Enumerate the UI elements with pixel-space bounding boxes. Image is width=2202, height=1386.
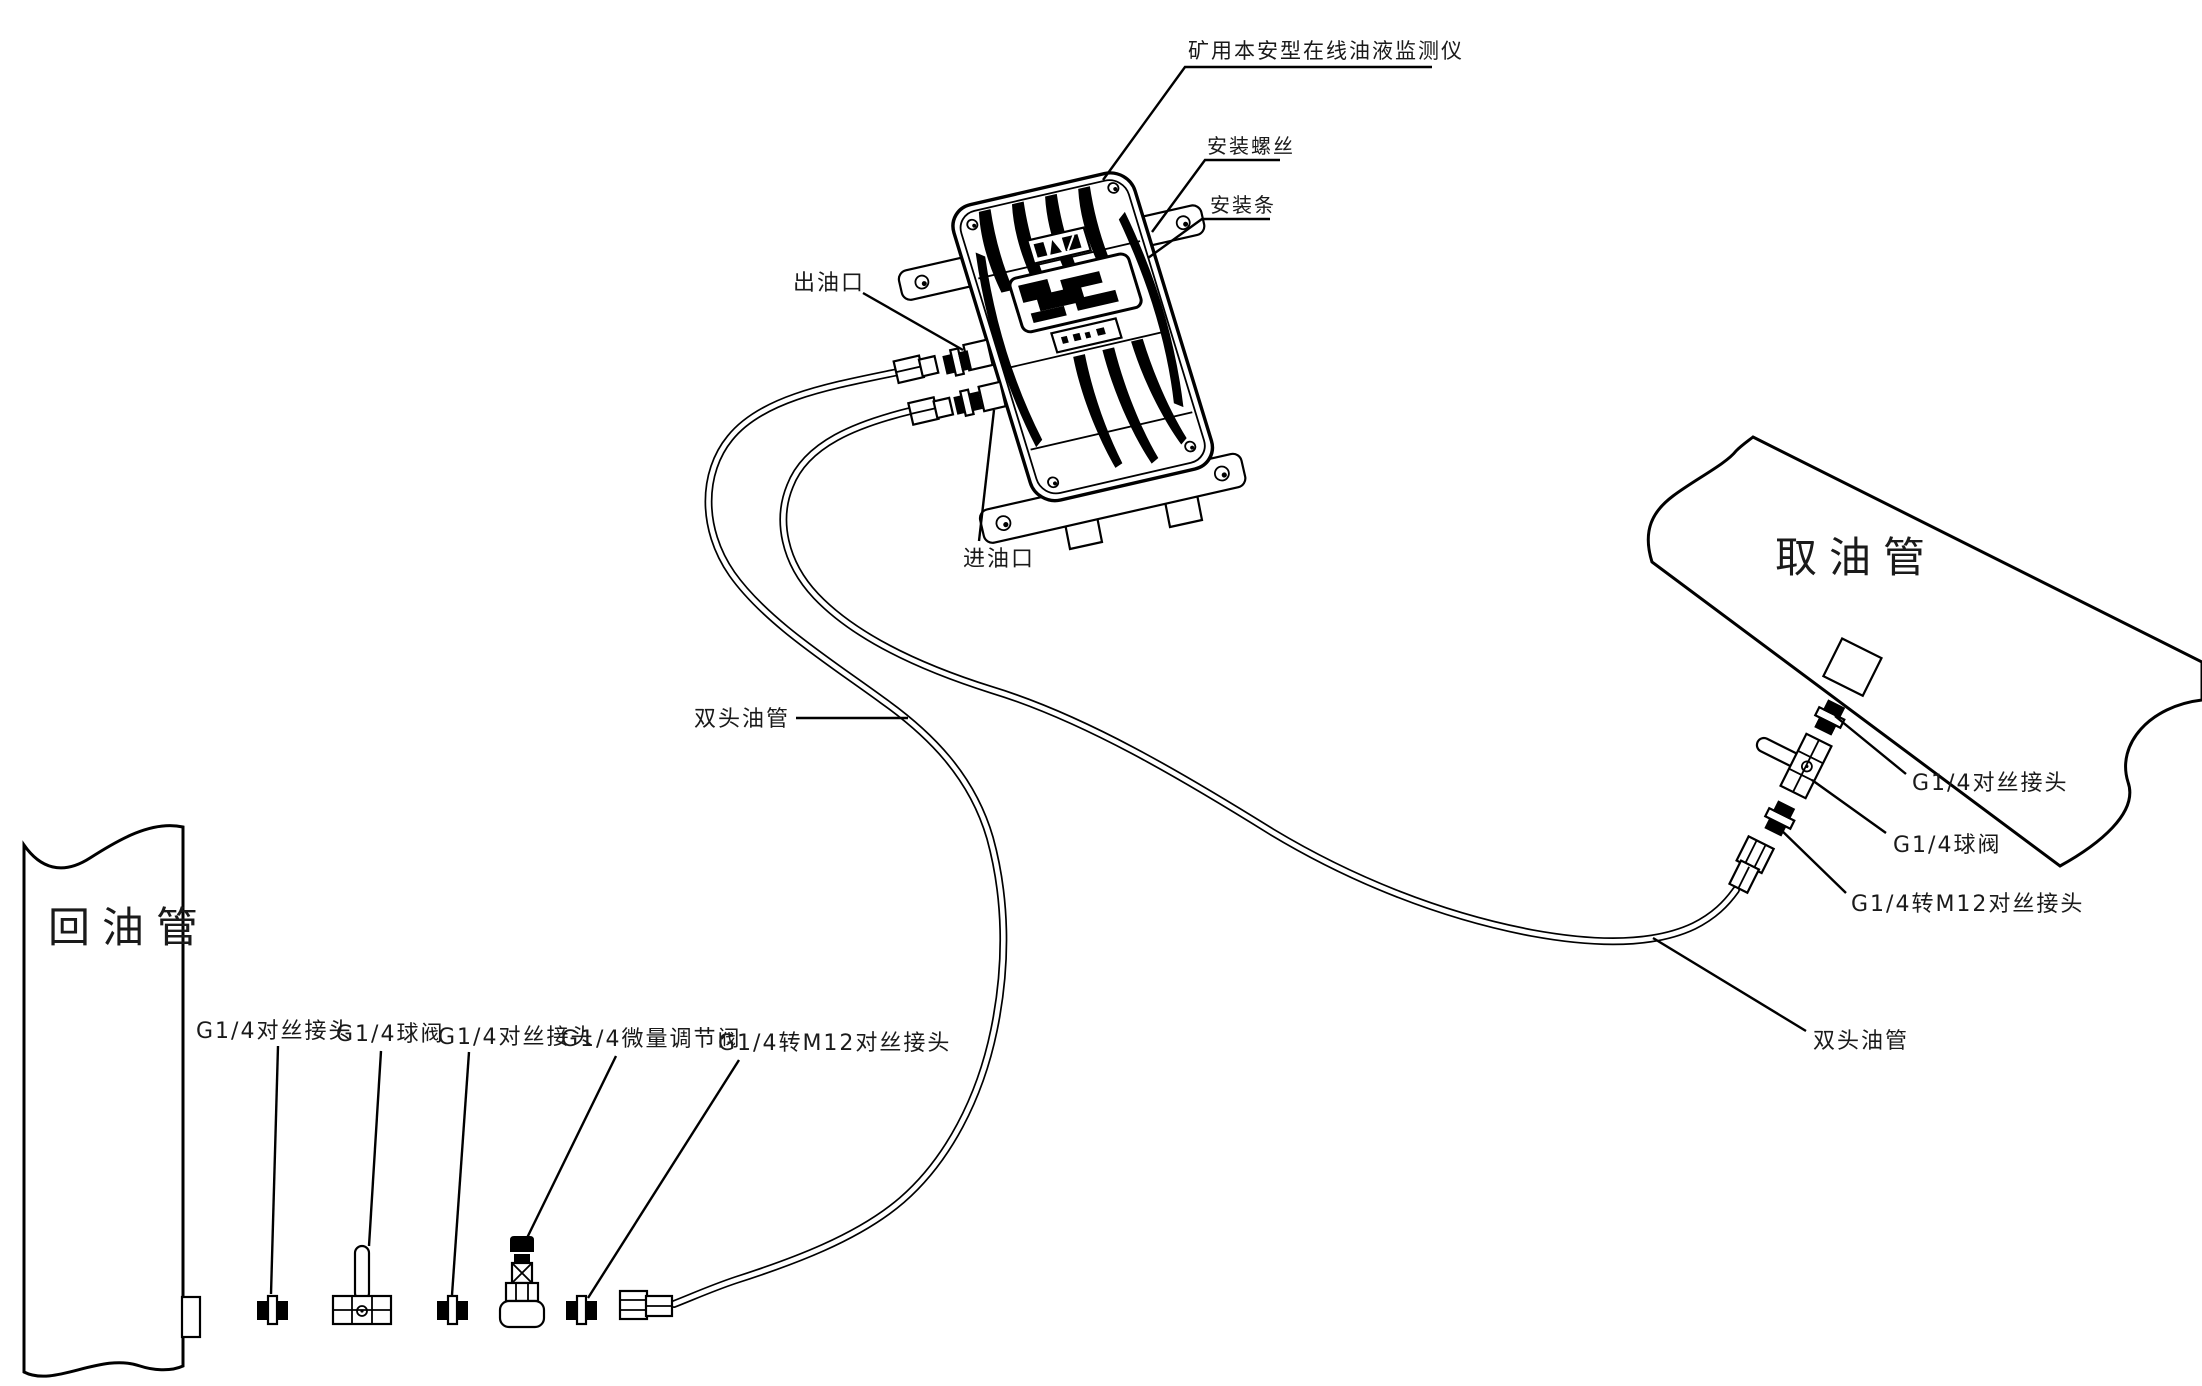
diagram-svg: 回油管 取油管	[0, 0, 2202, 1386]
hex-union-fitting-3	[566, 1296, 597, 1324]
valve-knob	[510, 1236, 534, 1252]
callout-bottom-micro-valve: G1/4微量调节阀	[526, 1027, 741, 1240]
callout-tube-left: 双头油管	[694, 707, 908, 732]
sampling-pipe-body	[1648, 437, 2202, 866]
callout-bottom-m12: G1/4转M12对丝接头	[588, 1031, 951, 1298]
outlet-tube-connector	[894, 352, 939, 383]
tube-outlet-to-return	[674, 372, 1003, 1304]
right-fittings-stack	[1726, 697, 1849, 894]
bottom-m12-label: G1/4转M12对丝接头	[718, 1031, 951, 1056]
device-title-label: 矿用本安型在线油液监测仪	[1188, 39, 1464, 63]
oil-return-pipe: 回油管	[24, 826, 210, 1377]
oil-inlet-label: 进油口	[963, 547, 1035, 572]
oil-sampling-pipe: 取油管	[1648, 437, 2202, 866]
bottom-micro-valve-label: G1/4微量调节阀	[561, 1027, 741, 1052]
oil-outlet-label: 出油口	[793, 271, 865, 296]
return-pipe-stub	[182, 1297, 200, 1337]
inlet-tube-connector	[908, 394, 953, 425]
right-ball-valve-label: G1/4球阀	[1893, 833, 2001, 858]
oil-inlet-port	[908, 382, 1005, 425]
right-union-label: G1/4对丝接头	[1912, 771, 2068, 796]
tube-inlet-to-sampling	[783, 410, 1736, 941]
mounting-screw-label: 安装螺丝	[1207, 134, 1295, 158]
tube-left-label: 双头油管	[694, 707, 790, 732]
bottom-union-1-label: G1/4对丝接头	[196, 1019, 352, 1044]
return-pipe-label: 回油管	[48, 903, 210, 952]
hex-union-fitting-1	[257, 1296, 288, 1324]
tube-end-connector-right	[1726, 836, 1774, 894]
ball-valve-bottom	[333, 1246, 391, 1324]
hex-m12-fitting-right	[1760, 798, 1799, 838]
micro-adjust-valve	[500, 1236, 544, 1327]
oil-outlet-port	[894, 340, 993, 383]
installation-diagram: 回油管 取油管	[0, 0, 2202, 1386]
tube-right-label: 双头油管	[1813, 1029, 1909, 1054]
hex-union-fitting-2	[437, 1296, 468, 1324]
inlet-hex-fitting	[952, 387, 983, 417]
bottom-fittings-row	[257, 1236, 672, 1327]
callout-tube-right: 双头油管	[1653, 938, 1909, 1054]
tube-end-connector-bottom	[620, 1291, 672, 1319]
callout-bottom-ball-valve: G1/4球阀	[336, 1022, 444, 1246]
callout-bottom-union-1: G1/4对丝接头	[196, 1019, 352, 1294]
valve-handle	[355, 1246, 369, 1300]
bottom-ball-valve-label: G1/4球阀	[336, 1022, 444, 1047]
mounting-bar-label: 安装条	[1210, 193, 1276, 217]
right-m12-label: G1/4转M12对丝接头	[1851, 892, 2084, 917]
sampling-pipe-label: 取油管	[1775, 533, 1937, 582]
valve-body	[500, 1301, 544, 1327]
callout-title: 矿用本安型在线油液监测仪	[1103, 39, 1464, 180]
